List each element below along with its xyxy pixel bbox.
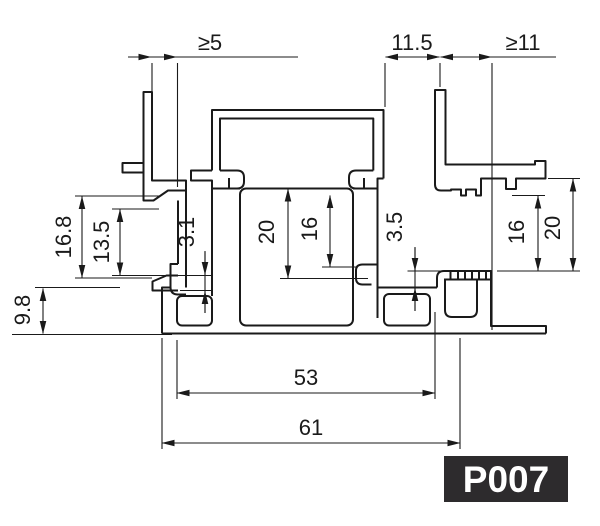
dimension-annotations: ≥5 11.5 ≥11 16.8 13.5 3.1 — [10, 30, 580, 449]
dim-label-3-5: 3.5 — [382, 212, 407, 243]
dim-label-center-20: 20 — [254, 220, 279, 244]
dim-center-20: 20 — [254, 189, 288, 278]
dim-ge5: ≥5 — [128, 30, 298, 57]
dim-53: 53 — [177, 365, 435, 393]
dim-3-5: 3.5 — [382, 212, 415, 311]
dim-label-right-20: 20 — [540, 216, 565, 240]
left-flange — [123, 163, 144, 173]
center-channel-inner — [220, 119, 373, 171]
dim-label-61: 61 — [299, 415, 323, 440]
part-number-text: P007 — [463, 459, 549, 500]
base-left-edge — [162, 288, 171, 334]
dim-label-13-5: 13.5 — [89, 221, 114, 264]
main-profile-outline — [123, 90, 547, 334]
profile-drawing: ≥5 11.5 ≥11 16.8 13.5 3.1 — [0, 0, 600, 526]
center-chamber — [240, 189, 353, 326]
dim-right-20: 20 — [540, 179, 573, 271]
dim-label-53: 53 — [294, 365, 318, 390]
dim-ge11: ≥11 — [441, 30, 557, 57]
center-right-wall-lower — [378, 179, 384, 319]
dim-label-right-16: 16 — [504, 220, 529, 244]
dim-label-9-8: 9.8 — [10, 295, 35, 326]
channel-lip-right — [349, 171, 373, 189]
dim-label-ge5: ≥5 — [198, 30, 222, 55]
base-cavity-right — [384, 294, 430, 326]
dim-label-ge11: ≥11 — [506, 30, 541, 55]
left-fin — [144, 92, 187, 201]
dim-13-5: 13.5 — [89, 210, 120, 276]
dim-16-8: 16.8 — [51, 197, 82, 278]
dim-right-16: 16 — [504, 196, 538, 271]
dim-label-center-16: 16 — [297, 217, 322, 241]
dim-label-16-8: 16.8 — [51, 216, 76, 259]
dim-label-3-1: 3.1 — [174, 217, 199, 248]
right-chamber-teeth — [451, 271, 487, 280]
right-clamp-piece — [435, 90, 546, 196]
right-chamber-inner — [445, 280, 477, 318]
dim-61: 61 — [162, 415, 460, 443]
center-right-wall-hook — [356, 265, 378, 285]
dim-11-5: 11.5 — [386, 30, 440, 57]
dim-3-1: 3.1 — [174, 217, 205, 313]
center-channel-outer — [212, 110, 384, 179]
channel-lip-left — [220, 171, 244, 189]
drawing-canvas: ≥5 11.5 ≥11 16.8 13.5 3.1 — [0, 0, 600, 526]
dim-center-16: 16 — [297, 196, 330, 267]
dim-9-8: 9.8 — [10, 289, 43, 334]
dim-label-11-5: 11.5 — [391, 30, 432, 55]
base-cavity-left — [177, 296, 212, 326]
part-number-badge: P007 — [444, 456, 568, 502]
